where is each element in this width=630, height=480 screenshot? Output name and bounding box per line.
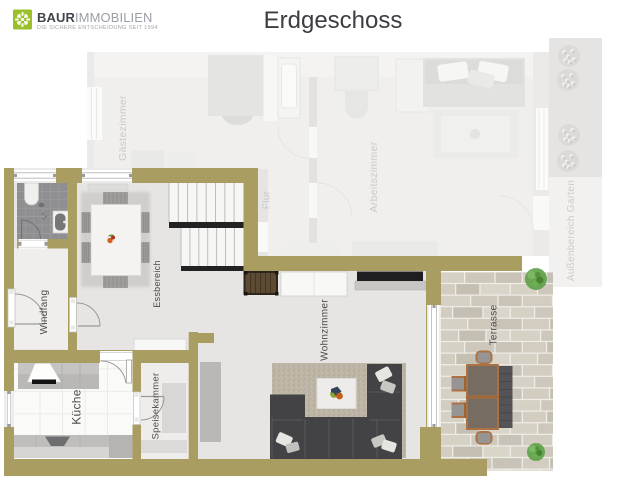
svg-text:Speisekammer: Speisekammer <box>151 373 162 440</box>
svg-text:Außenbereich Garten: Außenbereich Garten <box>566 180 577 281</box>
svg-text:Gästezimmer: Gästezimmer <box>117 95 129 161</box>
svg-text:Wohnzimmer: Wohnzimmer <box>320 299 331 361</box>
svg-text:Terrasse: Terrasse <box>489 304 500 345</box>
svg-text:DIE SICHERE ENTSCHEIDUNG SEIT: DIE SICHERE ENTSCHEIDUNG SEIT 1994 <box>37 25 158 31</box>
svg-text:BAURIMMOBILIEN: BAURIMMOBILIEN <box>37 10 153 25</box>
svg-text:Windfang: Windfang <box>39 290 50 335</box>
svg-text:Küche: Küche <box>70 389 84 425</box>
svg-text:Arbeitszimmer: Arbeitszimmer <box>368 141 380 212</box>
svg-text:Essbereich: Essbereich <box>152 260 162 308</box>
svg-text:Erdgeschoss: Erdgeschoss <box>264 7 403 34</box>
svg-text:Flur: Flur <box>262 190 273 209</box>
